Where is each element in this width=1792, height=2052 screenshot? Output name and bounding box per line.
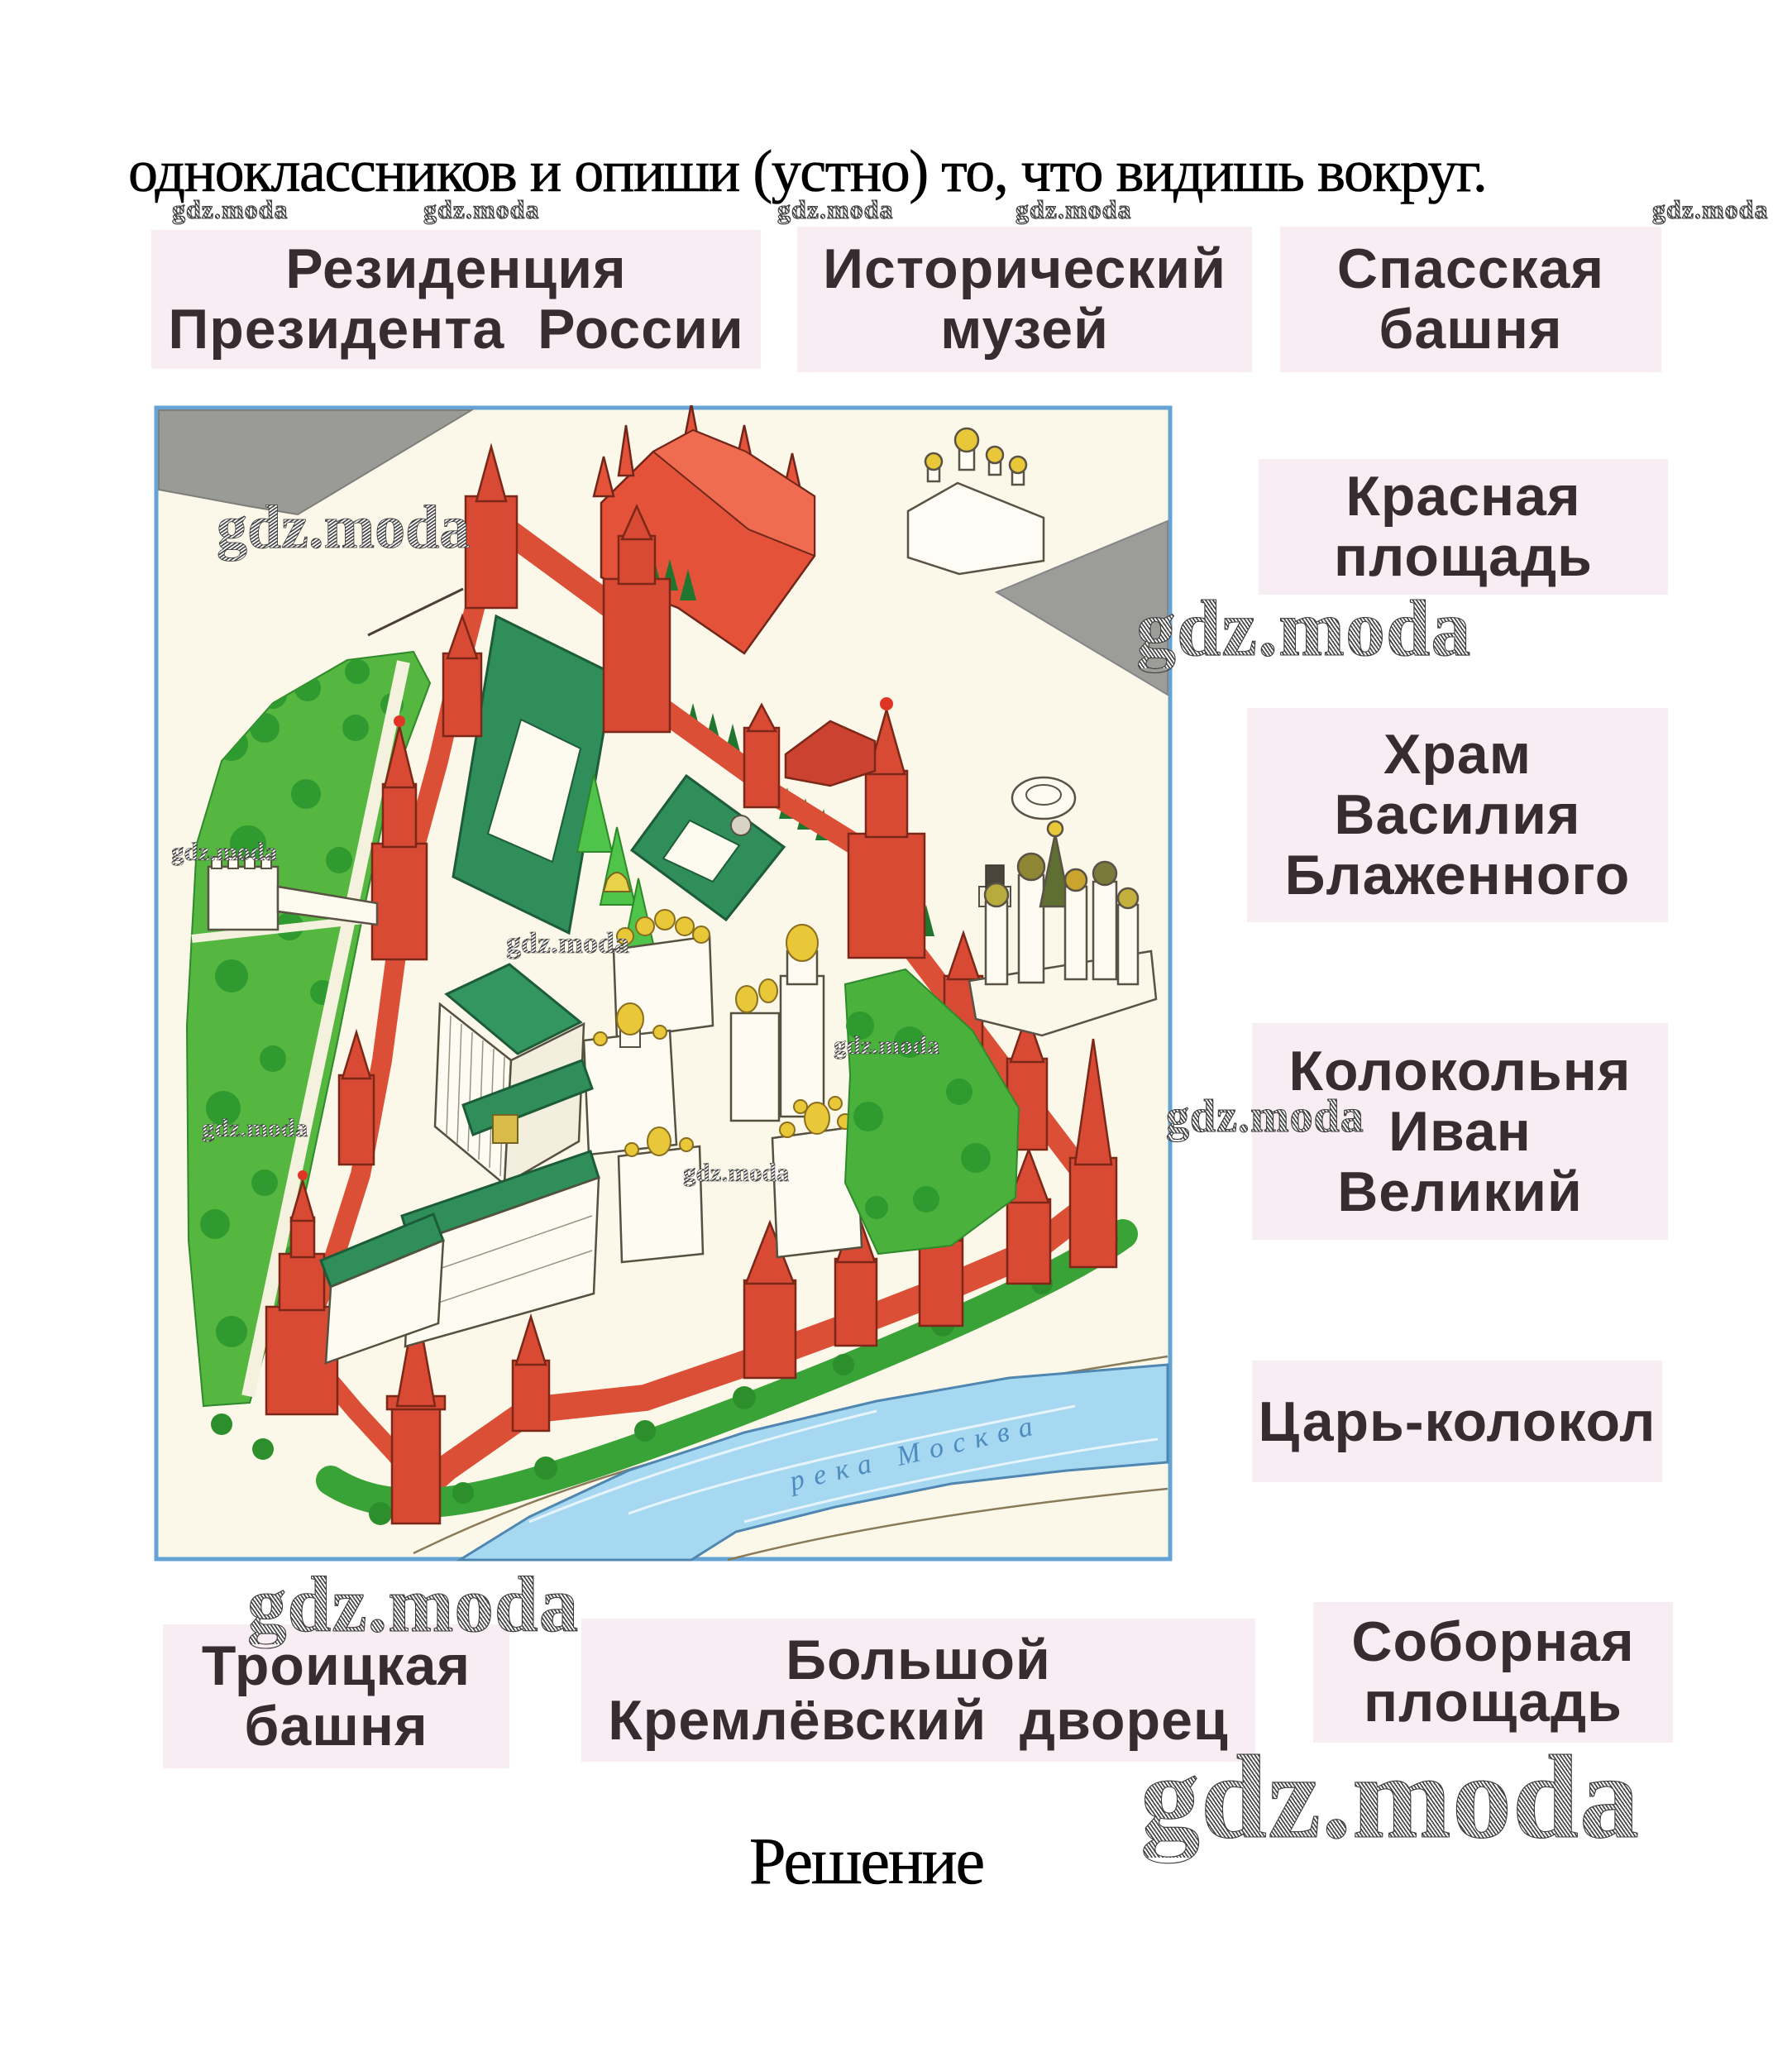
svg-text:gdz.moda: gdz.moda xyxy=(506,926,629,959)
svg-text:gdz.moda: gdz.moda xyxy=(217,494,470,562)
svg-text:gdz.moda: gdz.moda xyxy=(202,1113,308,1142)
svg-text:gdz.moda: gdz.moda xyxy=(834,1031,940,1059)
svg-text:gdz.moda: gdz.moda xyxy=(683,1158,790,1187)
svg-text:gdz.moda: gdz.moda xyxy=(171,837,278,866)
